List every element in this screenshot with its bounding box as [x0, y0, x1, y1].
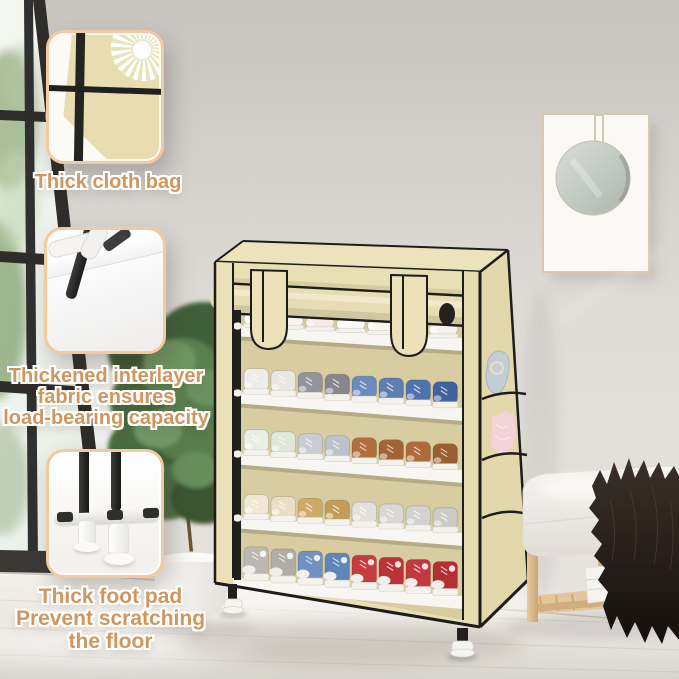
- shoe: [433, 382, 459, 408]
- callout-line: load-bearing capacity: [0, 408, 216, 429]
- shoe: [271, 370, 297, 396]
- shoe: [244, 495, 270, 520]
- frame-pole-left: [234, 310, 241, 580]
- shoe: [433, 444, 459, 470]
- bar-clamp: [143, 508, 159, 519]
- shoe: [297, 551, 324, 585]
- rack-strap: [391, 275, 427, 356]
- shoe: [352, 376, 378, 402]
- shoe: [244, 369, 270, 395]
- shoe: [325, 374, 351, 400]
- shoe: [271, 496, 297, 521]
- shoe: [298, 498, 324, 523]
- shoe: [406, 442, 432, 468]
- callout-card-foot-pad: [46, 449, 164, 578]
- callout-line: Prevent scratching: [8, 608, 213, 630]
- callout-line: Thickened interlayer: [0, 366, 216, 387]
- leg-pole: [79, 449, 89, 518]
- window-rail-1: [0, 110, 46, 122]
- interlayer-fabric: [44, 247, 166, 354]
- callout-line: fabric ensures: [0, 387, 216, 408]
- cover-column-left: [215, 262, 233, 583]
- shoe: [405, 559, 432, 593]
- shoe: [271, 432, 297, 458]
- shoe: [298, 434, 324, 460]
- callout-line: Thick foot pad: [8, 586, 213, 608]
- shoe: [243, 547, 270, 581]
- fan-hub: [131, 39, 153, 61]
- bar-clamp: [107, 510, 123, 521]
- shoe: [406, 506, 432, 531]
- shoe: [406, 380, 432, 406]
- shoe: [352, 502, 378, 527]
- product-scene: Thick cloth bag Thickened interlayer fab…: [0, 0, 679, 679]
- foot-cylinder: [108, 523, 129, 555]
- foot-pad: [74, 542, 100, 552]
- shoe: [351, 555, 378, 589]
- callout-label-foot-pad: Thick foot pad Prevent scratching the fl…: [8, 586, 213, 653]
- shoe: [270, 549, 297, 583]
- shoe: [379, 378, 405, 404]
- leg-pole: [111, 449, 121, 511]
- callout-card-cloth-bag: [46, 30, 164, 164]
- mirror-glass: [556, 141, 630, 215]
- shoe-rack: [175, 241, 558, 665]
- shoe: [325, 500, 351, 525]
- callout-line: the floor: [8, 631, 213, 653]
- shoe: [432, 562, 459, 596]
- callout-label-cloth-bag: Thick cloth bag: [8, 172, 208, 193]
- bench-leg: [527, 548, 538, 622]
- shoe: [352, 438, 378, 464]
- shoe: [433, 508, 459, 533]
- shoe: [244, 430, 270, 456]
- shoe: [379, 440, 405, 466]
- roll-end-knob: [439, 303, 455, 325]
- foot-pad: [104, 553, 134, 565]
- cover-column-right: [463, 271, 480, 627]
- shoe: [379, 504, 405, 529]
- rack-strap: [251, 270, 287, 349]
- shoe: [378, 557, 405, 591]
- shoe: [298, 372, 324, 398]
- callout-card-interlayer: [44, 227, 166, 354]
- callout-label-interlayer: Thickened interlayer fabric ensures load…: [0, 366, 216, 430]
- shoe: [324, 553, 351, 587]
- bar-clamp: [57, 511, 73, 522]
- shoe: [325, 436, 351, 462]
